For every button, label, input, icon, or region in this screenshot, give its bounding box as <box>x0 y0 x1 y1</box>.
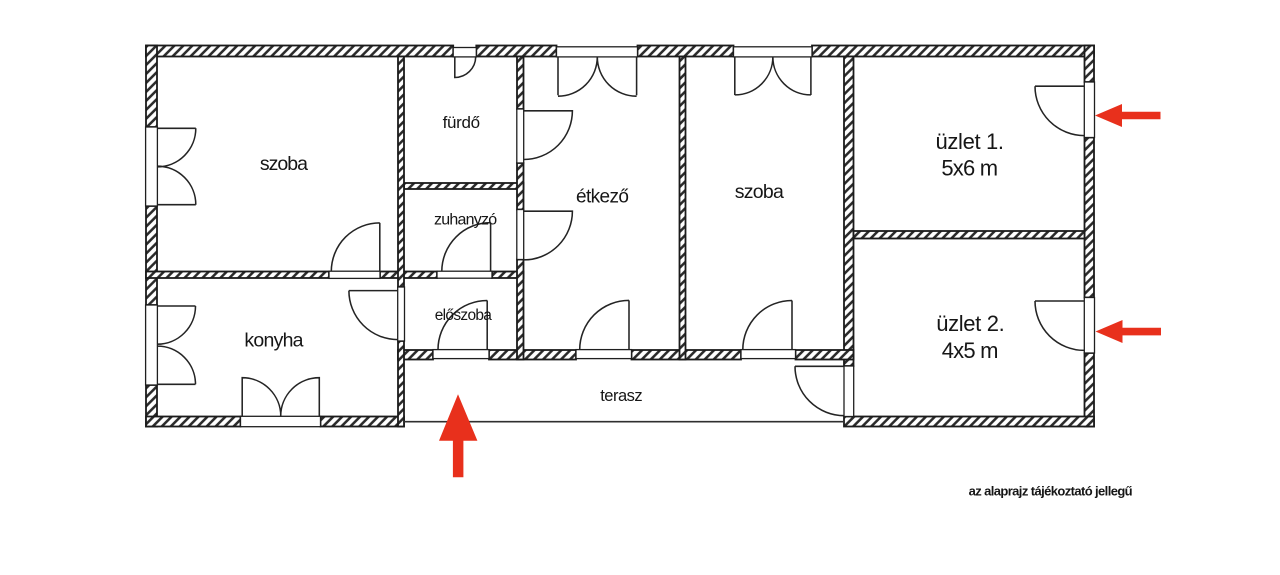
svg-text:szoba: szoba <box>260 153 308 175</box>
svg-text:zuhanyzó: zuhanyzó <box>434 212 497 229</box>
svg-text:előszoba: előszoba <box>435 307 493 324</box>
svg-text:fürdő: fürdő <box>443 113 480 132</box>
svg-text:4x5 m: 4x5 m <box>942 338 998 363</box>
svg-text:az alaprajz tájékoztató jelleg: az alaprajz tájékoztató jellegű <box>969 484 1133 499</box>
svg-text:szoba: szoba <box>735 181 784 203</box>
svg-text:üzlet 1.: üzlet 1. <box>936 129 1004 154</box>
svg-text:terasz: terasz <box>600 387 642 405</box>
svg-text:5x6 m: 5x6 m <box>941 155 997 180</box>
svg-text:üzlet 2.: üzlet 2. <box>936 311 1004 336</box>
svg-text:konyha: konyha <box>244 330 303 352</box>
svg-text:étkező: étkező <box>576 187 628 208</box>
